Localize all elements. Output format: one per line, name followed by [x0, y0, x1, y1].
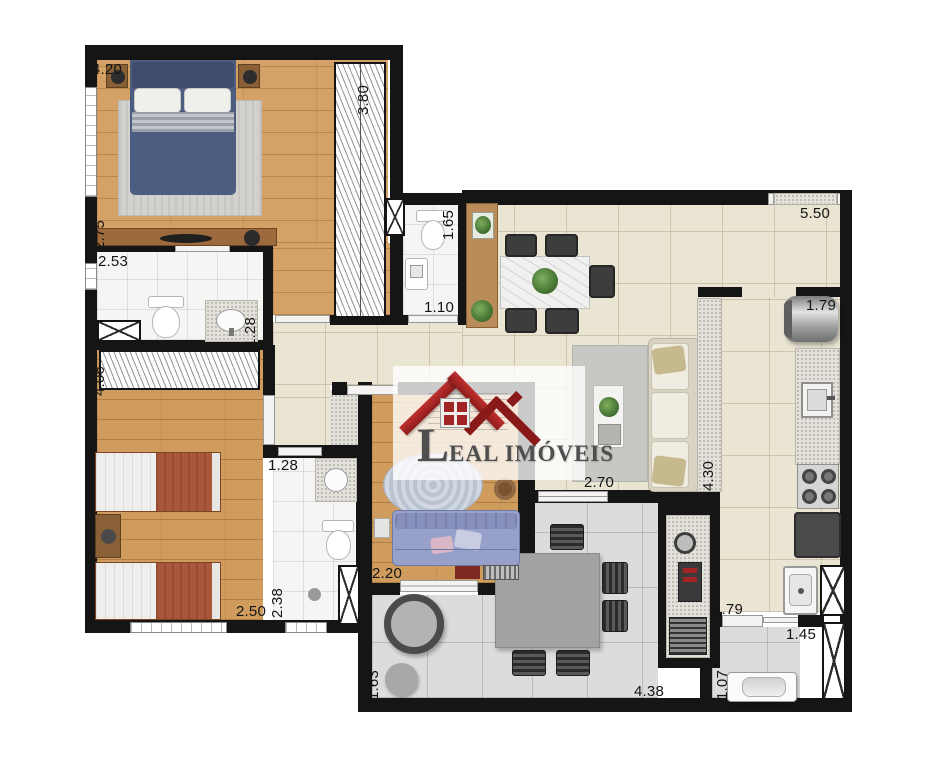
suite-door	[275, 315, 330, 323]
buffet-plant-2	[471, 300, 493, 322]
den-door	[347, 385, 398, 395]
dim-balcony-width: 4.38	[634, 684, 664, 699]
single-bed-2	[95, 562, 221, 620]
wall-lavabo-right	[458, 205, 466, 317]
nightstand-right	[238, 64, 260, 88]
wall-suite-right	[390, 45, 403, 315]
bed-pillow-right	[184, 88, 231, 113]
ottoman	[385, 663, 418, 696]
bed-pillow-left	[134, 88, 181, 113]
bedroom2-nightstand	[95, 514, 121, 558]
logo-wordmark: LEAL IMÓVEIS	[417, 418, 585, 474]
lavabo-sink	[405, 258, 428, 290]
floor-plan: 4.20 3.80 2.75 2.53 1.65 1.10 5.50 1.79 …	[0, 0, 931, 768]
suite-bath-window	[85, 263, 97, 290]
burner	[802, 469, 817, 484]
den-tv-rack	[455, 566, 480, 579]
wall-suite-bath-right	[263, 252, 273, 345]
dim-suite-width: 4.20	[92, 62, 122, 77]
bath2-window	[285, 622, 327, 633]
round-lounge-chair	[384, 594, 444, 654]
den-sofa-pillow	[454, 529, 483, 551]
dim-counter-length: 4.30	[701, 461, 716, 491]
bed1-blanket	[156, 453, 212, 511]
balcony-chair	[512, 650, 546, 676]
bbq-grate	[669, 617, 707, 655]
tank-faucet	[798, 588, 804, 594]
logo-window-pane	[444, 402, 454, 412]
dim-laundry-width: 1.45	[786, 627, 816, 642]
balcony-chair	[602, 562, 628, 594]
logo-chimney	[506, 391, 522, 407]
bath2-toilet-bowl	[326, 530, 351, 560]
lamp	[101, 529, 116, 544]
dining-chair	[545, 308, 579, 334]
bed2-pillow-zone	[96, 563, 156, 619]
laundry-door-leaf	[763, 617, 800, 623]
kitchen-sink-basin	[807, 389, 827, 411]
wall-top	[85, 45, 390, 60]
dim-bedroom2-width: 2.50	[236, 604, 266, 619]
bbq-embers	[683, 577, 697, 582]
bbq-embers	[683, 568, 697, 573]
hall-floor-lower	[273, 385, 330, 450]
den-sofa-pillow-pink	[430, 536, 454, 555]
burner	[821, 469, 836, 484]
shaft-suite-bath	[97, 320, 141, 342]
coffee-table	[593, 385, 624, 448]
shaft-lavabo	[385, 198, 405, 236]
lavabo-door	[408, 315, 458, 323]
burner	[802, 489, 817, 504]
heater-cap	[784, 300, 792, 338]
bed1-pillow-zone	[96, 453, 156, 511]
refrigerator	[794, 512, 841, 558]
bath2-sink-basin	[324, 468, 348, 492]
logo-initial: L	[417, 419, 449, 472]
entry-door-sill	[774, 193, 837, 205]
dim-balcony-depth: 1.63	[366, 670, 381, 700]
wall-lavabo-top	[396, 193, 466, 205]
lavabo-basin	[410, 265, 423, 278]
dim-suite-bath-width: 2.53	[98, 254, 128, 269]
dim-lavabo-depth: 1.65	[441, 210, 456, 240]
bedroom2-window	[130, 622, 227, 633]
bath2-door	[278, 447, 322, 456]
dim-suite-wardrobe-depth: 3.80	[356, 85, 371, 115]
bed-throw	[132, 112, 234, 132]
logo-window-pane	[457, 402, 467, 412]
dim-living-width: 5.50	[800, 206, 830, 221]
bedroom2-wardrobe	[99, 350, 260, 390]
bbq-round-burner	[674, 532, 696, 554]
den-tv-rack-2	[483, 565, 519, 580]
dining-chair	[505, 234, 537, 257]
living-sofa	[648, 338, 700, 492]
dim-bath2-width: 1.28	[268, 458, 298, 473]
den-sofa	[392, 510, 520, 566]
washing-machine	[727, 672, 797, 702]
faucet	[229, 328, 234, 336]
washer-door	[742, 677, 786, 697]
dim-laundry-depth: 1.07	[715, 670, 730, 700]
dim-kitchen-pass-width: 1.79	[806, 298, 836, 313]
dim-suite-side-depth: 2.75	[92, 220, 107, 250]
den-balcony-slider	[400, 580, 478, 592]
den-sofa-seat-line	[395, 549, 517, 550]
dim-living-opening: 2.70	[584, 475, 614, 490]
dining-chair	[505, 308, 537, 333]
dining-chair	[545, 234, 578, 257]
bedroom2-door	[263, 395, 275, 445]
floor-drain	[308, 588, 321, 601]
dim-laundry-pass: 1.79	[713, 602, 743, 617]
suite-toilet-bowl	[152, 306, 180, 338]
dim-bath2-depth: 2.38	[270, 588, 285, 618]
desk-tray	[160, 234, 212, 243]
single-bed-1	[95, 452, 221, 512]
balcony-chair	[602, 600, 628, 632]
shaft-bath2	[338, 565, 360, 625]
balcony-chair	[556, 650, 590, 676]
bbq-counter	[666, 515, 710, 658]
bbq-grill-box	[678, 562, 702, 602]
bed-headboard-cushions	[132, 62, 234, 88]
double-bed	[130, 60, 236, 195]
buffet-plant	[475, 216, 491, 234]
lamp	[243, 70, 257, 84]
bed1-foot-fold	[212, 453, 220, 511]
dim-suite-bath-depth: 1.28	[243, 317, 258, 347]
suite-desk	[97, 228, 277, 246]
den-sofa-back	[395, 513, 517, 529]
watermark-logo: LEAL IMÓVEIS	[393, 366, 585, 480]
coffee-table-plant	[599, 397, 619, 417]
shaft-kitchen-b	[822, 622, 846, 700]
living-balcony-slider	[538, 491, 608, 502]
den-stool	[494, 478, 516, 500]
den-threshold	[330, 390, 358, 450]
shaft-kitchen-a	[820, 565, 846, 616]
desk-object	[244, 230, 260, 246]
laundry-tank-sink	[783, 566, 818, 615]
dim-lavabo-width: 1.10	[424, 300, 454, 315]
wall-den-left	[358, 382, 372, 595]
sofa-seat	[651, 392, 689, 439]
buffet	[466, 203, 498, 328]
bed2-blanket	[156, 563, 212, 619]
logo-rest: EAL IMÓVEIS	[449, 441, 614, 466]
wall-den-top-a	[332, 382, 347, 395]
balcony-chair	[550, 524, 584, 550]
kitchen-sink	[801, 382, 833, 418]
dining-centerpiece	[532, 268, 558, 294]
bed2-foot-fold	[212, 563, 220, 619]
sofa-pillow	[651, 455, 686, 487]
kitchen-faucet	[827, 396, 835, 400]
dim-den-width: 2.20	[372, 566, 402, 581]
bath2-sink-counter	[315, 458, 357, 502]
wall-kitchen-stub-left	[698, 287, 742, 297]
suite-window	[85, 87, 97, 197]
den-side-table	[374, 518, 390, 538]
dining-chair	[589, 265, 615, 298]
cooktop	[797, 464, 839, 509]
burner	[821, 489, 836, 504]
wall-bedroom2-right-a	[263, 345, 275, 395]
sofa-pillow	[651, 345, 686, 375]
dim-bedroom2-wardrobe: 4.06	[92, 366, 107, 396]
